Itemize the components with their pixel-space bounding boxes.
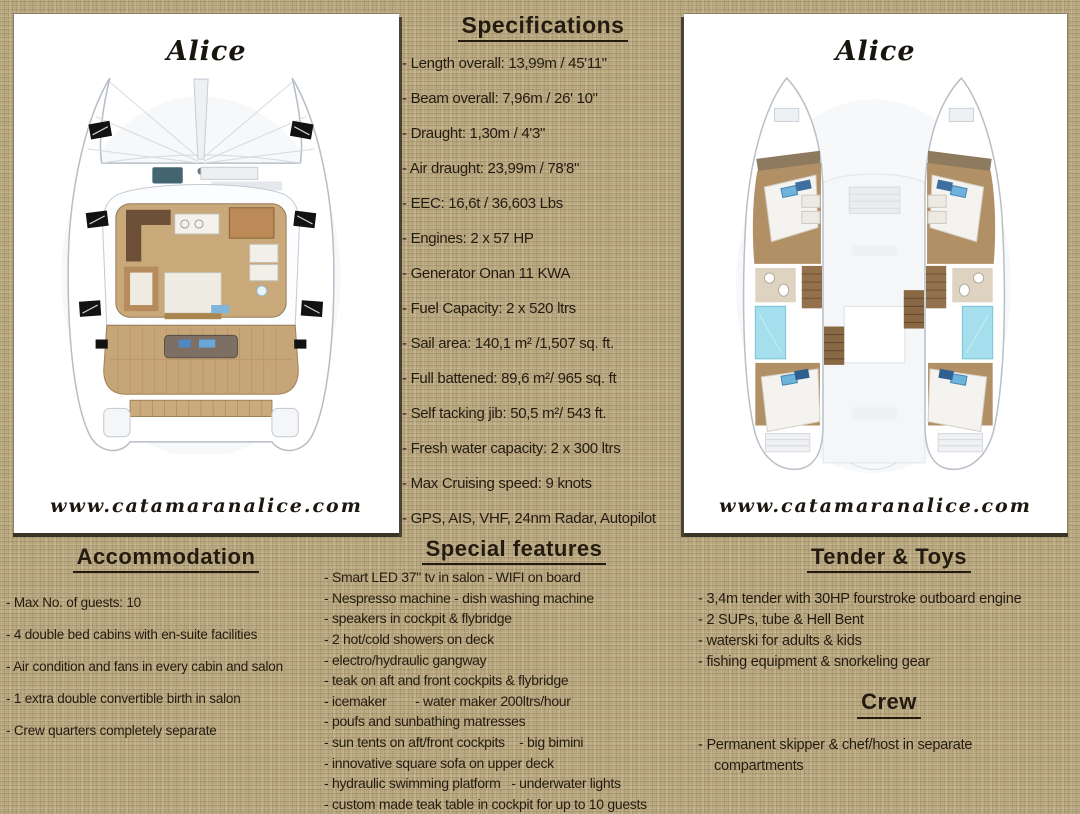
list-item: - speakers in cockpit & flybridge xyxy=(324,608,704,629)
list-item: - icemaker - water maker 200ltrs/hour xyxy=(324,691,704,712)
accommodation-list: - Max No. of guests: 10- 4 double bed ca… xyxy=(6,593,326,740)
list-item: - Smart LED 37" tv in salon - WIFI on bo… xyxy=(324,567,704,588)
front-cockpit-seat xyxy=(152,167,182,183)
list-item: - Fuel Capacity: 2 x 520 ltrs xyxy=(402,299,684,319)
crew-section: Crew xyxy=(698,689,1080,718)
list-item: - 2 SUPs, tube & Hell Bent xyxy=(698,610,1080,631)
list-item: - custom made teak table in cockpit for … xyxy=(324,794,704,814)
list-item: - Max Cruising speed: 9 knots xyxy=(402,474,684,494)
port-hull xyxy=(744,78,823,469)
list-item: - Engines: 2 x 57 HP xyxy=(402,229,684,249)
list-item: - 4 double bed cabins with en-suite faci… xyxy=(6,625,326,644)
list-item: - 2 hot/cold showers on deck xyxy=(324,629,704,650)
list-item: - Sail area: 140,1 m² /1,507 sq. ft. xyxy=(402,334,684,354)
list-item: - GPS, AIS, VHF, 24nm Radar, Autopilot xyxy=(402,509,684,529)
list-item: - Length overall: 13,99m / 45'11" xyxy=(402,54,684,74)
crew-list: - Permanent skipper & chef/host in separ… xyxy=(698,735,1080,777)
list-item: - Self tacking jib: 50,5 m²/ 543 ft. xyxy=(402,404,684,424)
specifications-heading: Specifications xyxy=(458,12,629,42)
list-item: - EEC: 16,6t / 36,603 Lbs xyxy=(402,194,684,214)
list-item: - Full battened: 89,6 m²/ 965 sq. ft xyxy=(402,369,684,389)
aft-cockpit xyxy=(104,325,299,394)
website-url: www.catamaranalice.com xyxy=(684,495,1067,517)
specifications-section: Specifications - Length overall: 13,99m … xyxy=(402,12,684,544)
salon-interior xyxy=(116,204,286,320)
tender-toys-list: - 3,4m tender with 30HP fourstroke outbo… xyxy=(698,589,1080,673)
website-url: www.catamaranalice.com xyxy=(14,495,399,517)
list-item: - Nespresso machine - dish washing machi… xyxy=(324,588,704,609)
deck-plan-panel: Alice xyxy=(13,13,399,533)
list-item: - teak on aft and front cockpits & flybr… xyxy=(324,670,704,691)
crew-heading: Crew xyxy=(857,689,921,718)
special-features-section: Special features - Smart LED 37" tv in s… xyxy=(324,536,704,814)
list-item: - fishing equipment & snorkeling gear xyxy=(698,652,1080,673)
list-item: - waterski for adults & kids xyxy=(698,631,1080,652)
list-item: - electro/hydraulic gangway xyxy=(324,650,704,671)
list-item: - Beam overall: 7,96m / 26' 10" xyxy=(402,89,684,109)
list-item: - Generator Onan 11 KWA xyxy=(402,264,684,284)
list-item: - innovative square sofa on upper deck xyxy=(324,753,704,774)
list-item: - Crew quarters completely separate xyxy=(6,721,326,740)
list-item: - Draught: 1,30m / 4'3" xyxy=(402,124,684,144)
accommodation-section: Accommodation - Max No. of guests: 10- 4… xyxy=(6,544,326,753)
list-item: - 1 extra double convertible birth in sa… xyxy=(6,689,326,708)
accommodation-heading: Accommodation xyxy=(73,544,260,573)
list-item: - Air draught: 23,99m / 78'8" xyxy=(402,159,684,179)
list-item: - poufs and sunbathing matresses xyxy=(324,711,704,732)
list-item: - hydraulic swimming platform - underwat… xyxy=(324,773,704,794)
specifications-list: - Length overall: 13,99m / 45'11"- Beam … xyxy=(402,54,684,529)
boat-name-title: Alice xyxy=(684,36,1067,67)
list-item: - Max No. of guests: 10 xyxy=(6,593,326,612)
special-features-heading: Special features xyxy=(422,536,607,565)
brochure-page: { "left_panel": { "title": "Alice", "web… xyxy=(0,0,1080,810)
special-features-list: - Smart LED 37" tv in salon - WIFI on bo… xyxy=(324,567,704,814)
deck-plan-graphic xyxy=(58,74,344,454)
tender-toys-heading: Tender & Toys xyxy=(807,544,971,573)
tender-toys-section: Tender & Toys - 3,4m tender with 30HP fo… xyxy=(698,544,1080,777)
list-item: - sun tents on aft/front cockpits - big … xyxy=(324,732,704,753)
hull-layout-graphic xyxy=(730,74,1018,476)
cabin-layout-panel: Alice xyxy=(684,13,1068,533)
bridgedeck xyxy=(823,174,925,469)
starboard-hull xyxy=(925,78,1004,469)
list-item: - Air condition and fans in every cabin … xyxy=(6,657,326,676)
list-item: - 3,4m tender with 30HP fourstroke outbo… xyxy=(698,589,1080,610)
list-item: - Fresh water capacity: 2 x 300 ltrs xyxy=(402,439,684,459)
boat-name-title: Alice xyxy=(14,36,399,67)
list-item: - Permanent skipper & chef/host in separ… xyxy=(698,735,1059,777)
